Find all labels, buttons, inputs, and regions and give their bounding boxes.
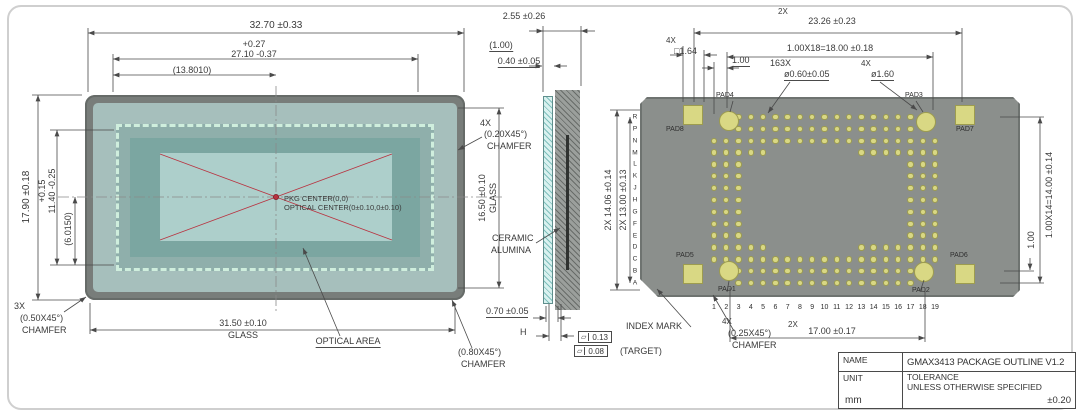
optical-area-label: OPTICAL AREA	[316, 336, 381, 348]
dim-pkg-width: 32.70 ±0.33	[250, 21, 303, 31]
dim-holes-qty: 163X	[770, 58, 791, 68]
title-block: NAME GMAX3413 PACKAGE OUTLINE V1.2 UNIT …	[838, 352, 1076, 409]
dim-inner-height-plus: +0.15	[37, 180, 47, 203]
flatness-frame-2: ▱ 0.08	[574, 345, 608, 357]
glass-height-label: GLASS	[488, 183, 498, 213]
flatness-value-1: 0.13	[589, 333, 611, 342]
title-block-unit-label: UNIT	[843, 373, 863, 383]
unit-value: mm	[845, 395, 862, 406]
material-alumina: ALUMINA	[491, 245, 531, 255]
dim-left-inner: 2X 13.00 ±0.13	[618, 170, 628, 231]
dim-inner-width-plus: +0.27	[243, 39, 266, 49]
flatness-icon: ▱	[575, 347, 585, 355]
dim-half-ref: (13.8010)	[173, 65, 212, 75]
title-block-name-label: NAME	[839, 353, 903, 371]
dim-right-pitch-total: 1.00X14=14.00 ±0.14	[1044, 152, 1054, 238]
flatness-icon: ▱	[579, 333, 589, 341]
chamfer3x-qty: 3X	[14, 301, 25, 311]
dim-holes-dia: ø0.60±0.05	[784, 69, 829, 81]
dim-ref-100: (1.00)	[489, 40, 513, 52]
dim-h-label: H	[520, 327, 527, 337]
flatness-target-note: (TARGET)	[620, 346, 662, 356]
drawing-title: GMAX3413 PACKAGE OUTLINE V1.2	[907, 354, 1071, 368]
chamfer025-qty: 4X	[722, 317, 732, 327]
chamfer4x-label: CHAMFER	[487, 141, 532, 151]
optical-center-note: OPTICAL CENTER(0±0.10,0±0.10)	[284, 203, 402, 213]
chamfer4x-size: (0.20X45°)	[484, 129, 527, 139]
dim-top-qty: 2X	[778, 7, 788, 17]
chamfer080-size: (0.80X45°)	[458, 347, 501, 357]
chamfer025-size: (0.25X45°)	[728, 328, 771, 338]
package-outline-drawing: PAD8PAD4PAD3PAD7PAD5PAD1PAD2PAD6RPNMLKJH…	[0, 0, 1080, 415]
chamfer3x-size: (0.50X45°)	[20, 313, 63, 323]
dim-thickness: 2.55 ±0.26	[503, 11, 545, 21]
dim-sq-qty: 4X	[666, 36, 676, 46]
chamfer080-label: CHAMFER	[461, 359, 506, 369]
chamfer3x-label: CHAMFER	[22, 325, 67, 335]
dim-glass-thickness: 0.40 ±0.05	[498, 56, 540, 68]
glass-width-label: GLASS	[228, 330, 258, 340]
dim-top-span: 23.26 ±0.23	[808, 16, 855, 26]
tolerance-line2: UNLESS OTHERWISE SPECIFIED	[907, 382, 1071, 392]
dim-bottom-qty: 2X	[788, 320, 798, 330]
dim-inner-width: 27.10 -0.37	[231, 49, 277, 59]
dim-circ-qty: 4X	[861, 59, 871, 69]
dim-pkg-height: 17.90 ±0.18	[22, 171, 32, 224]
dim-glass-width: 31.50 ±0.10	[219, 318, 266, 328]
dim-right-pitch: 1.00	[1026, 231, 1036, 249]
chamfer4x-qty: 4X	[480, 118, 491, 128]
material-ceramic: CERAMIC	[492, 233, 534, 243]
tolerance-line1: TOLERANCE	[907, 372, 1071, 382]
dim-row-pitch-total: 1.00X18=18.00 ±0.18	[787, 43, 873, 53]
dim-bottom-span: 17.00 ±0.17	[808, 326, 855, 336]
dim-left-outer: 2X 14.06 ±0.14	[603, 170, 613, 231]
tolerance-value: ±0.20	[1047, 395, 1071, 406]
dim-glass-height: 16.50 ±0.10	[477, 174, 487, 221]
index-mark-label: INDEX MARK	[626, 321, 682, 331]
flatness-frame-1: ▱ 0.13	[578, 331, 612, 343]
flatness-value-2: 0.08	[585, 347, 607, 356]
dim-pitch-100-top: 1.00	[732, 55, 750, 67]
dim-inner-height: 11.40 -0.25	[47, 169, 57, 214]
chamfer025-label: CHAMFER	[732, 340, 777, 350]
dim-sq-size: □1.64	[674, 46, 697, 56]
dim-bottom-070: 0.70 ±0.05	[486, 306, 528, 318]
dim-half-v-ref: (6.0150)	[63, 212, 73, 246]
dim-circ-dia: ø1.60	[871, 69, 894, 81]
